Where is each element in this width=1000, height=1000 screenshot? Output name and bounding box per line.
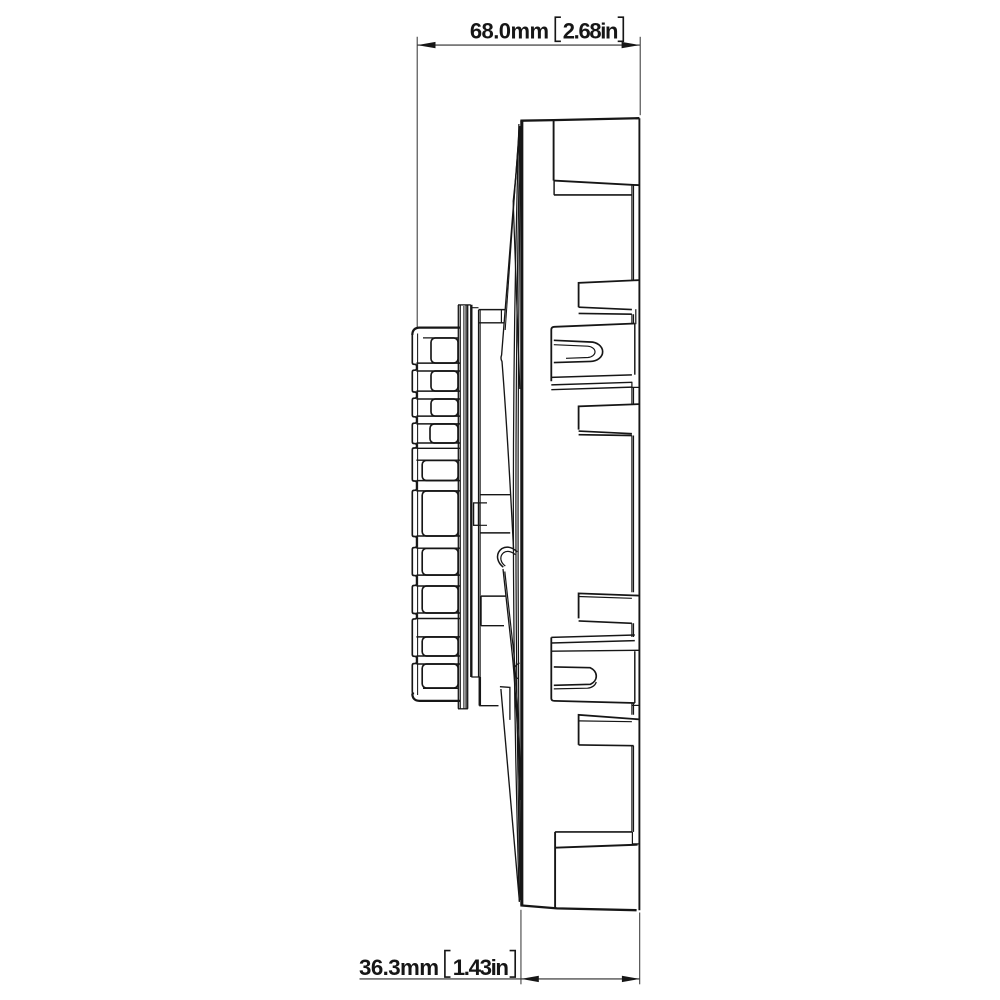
- svg-text:68.0mm: 68.0mm: [470, 19, 549, 44]
- svg-text:2.68in: 2.68in: [563, 19, 618, 44]
- svg-text:1.43in: 1.43in: [453, 955, 509, 980]
- svg-text:36.3mm: 36.3mm: [359, 955, 438, 980]
